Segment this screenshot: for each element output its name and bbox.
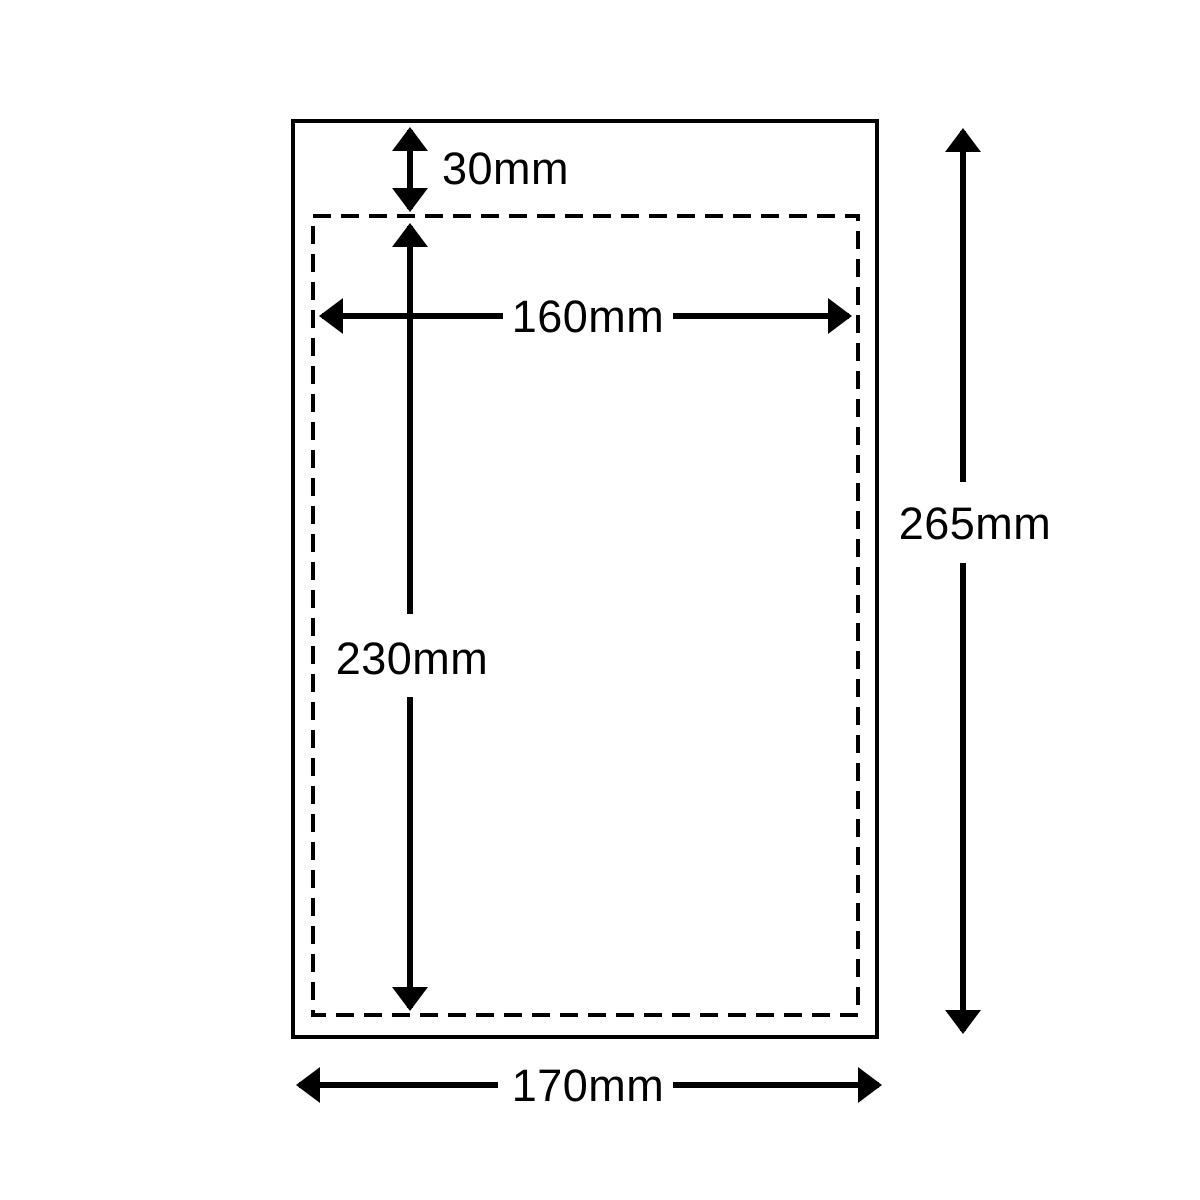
outer-height-label: 265mm: [899, 498, 1052, 549]
inner-width-label: 160mm: [512, 291, 665, 342]
dimension-diagram: 30mm 160mm 230mm 265mm 170mm: [0, 0, 1200, 1200]
outer-rectangle: [293, 121, 877, 1037]
outer-width-label: 170mm: [512, 1060, 665, 1111]
outer-width-arrow: 170mm: [299, 1060, 879, 1111]
top-offset-label: 30mm: [442, 143, 569, 194]
inner-height-label: 230mm: [336, 633, 489, 684]
inner-height-arrow: 230mm: [336, 226, 489, 1008]
diagram-canvas: 30mm 160mm 230mm 265mm 170mm: [0, 0, 1200, 1200]
outer-height-arrow: 265mm: [899, 131, 1052, 1031]
inner-width-arrow: 160mm: [322, 291, 849, 342]
top-offset-arrow: 30mm: [410, 130, 569, 209]
